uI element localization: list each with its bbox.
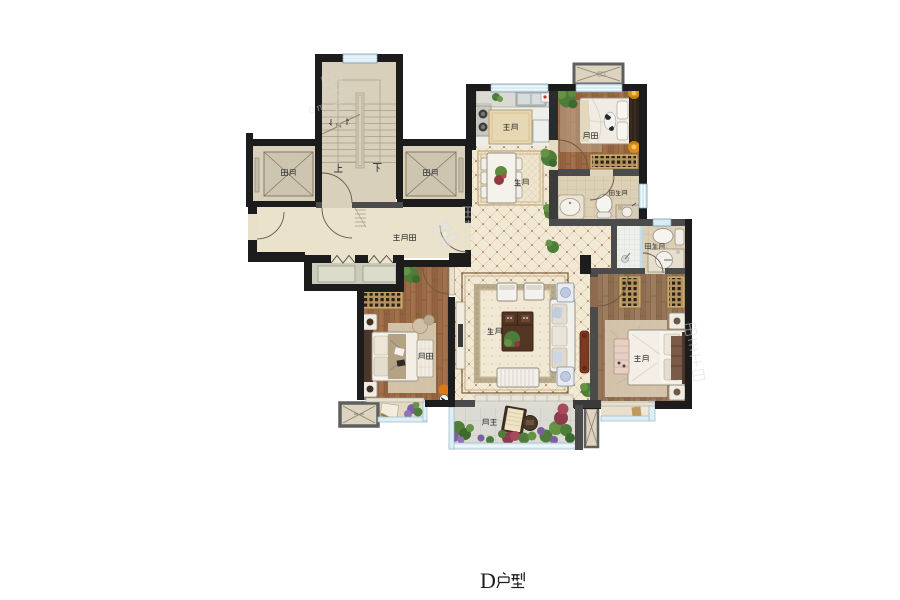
svg-text:D: D	[480, 568, 496, 593]
